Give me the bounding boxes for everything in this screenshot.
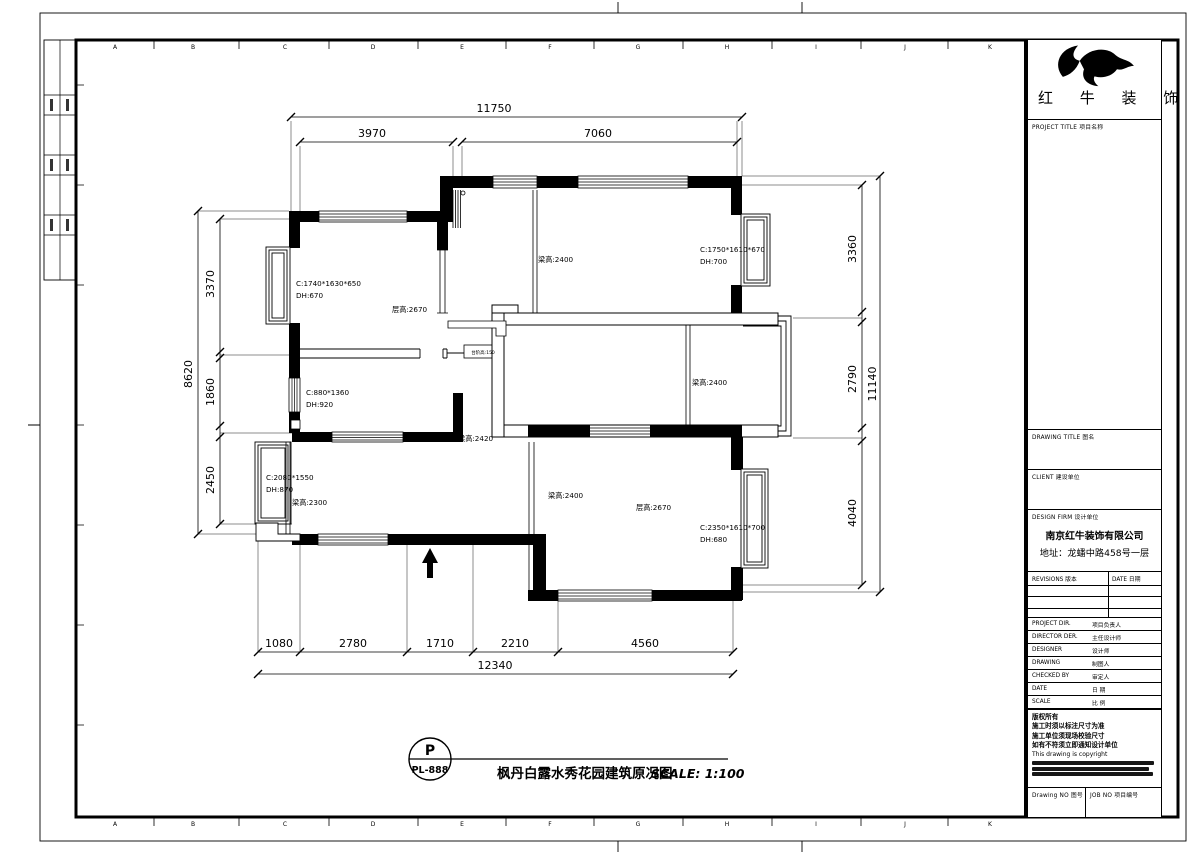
firm-address: 地址：龙蟠中路458号一层 [1028, 545, 1161, 559]
grid-letter-bottom: F [548, 821, 552, 828]
dimension-value: 4040 [846, 499, 859, 527]
plan-label: DH:670 [296, 291, 324, 300]
drawing-no-label: Drawing NO 图号 [1028, 788, 1085, 799]
personnel-role-en: DATE [1028, 686, 1092, 692]
notes-section: 版权所有施工时须以标注尺寸为准施工单位须现场校验尺寸如有不符须立即通知设计单位 … [1028, 709, 1161, 788]
personnel-role-en: CHECKED BY [1028, 673, 1092, 679]
firm-name: 南京红牛装饰有限公司 [1028, 528, 1161, 542]
stamp-letter: P [425, 743, 435, 759]
grid-letter-bottom: C [283, 821, 287, 828]
dimension-value: 3970 [358, 127, 386, 140]
client-section: CLIENT 建设单位 [1028, 470, 1161, 510]
dimension-value: 1080 [265, 637, 293, 650]
personnel-row: CHECKED BY审定人 [1028, 670, 1161, 683]
dimension-value: 2210 [501, 637, 529, 650]
personnel-role-cn: 审定人 [1092, 672, 1109, 681]
grid-letter-top: F [548, 44, 552, 51]
dimension-value: 2780 [339, 637, 367, 650]
plan-label: C:880*1360 [306, 388, 349, 397]
note-line: 如有不符须立即通知设计单位 [1032, 741, 1158, 750]
dimension-value: 3370 [204, 270, 217, 298]
note-line: 施工单位须现场校验尺寸 [1032, 732, 1158, 741]
brand-name: 红 牛 装 饰 [1028, 87, 1161, 108]
plan-label: DH:870 [266, 485, 294, 494]
drawing-title: 枫丹白露水秀花园建筑原况图 [497, 765, 673, 782]
strip-marks [50, 99, 69, 231]
grid-letter-top: B [191, 44, 195, 51]
grid-letter-top: A [113, 44, 118, 51]
grid-letter-bottom: D [371, 821, 376, 828]
dimension-value: 7060 [584, 127, 612, 140]
grid-letter-bottom: G [636, 821, 641, 828]
drawing-no-cell: Drawing NO 图号 [1028, 788, 1086, 817]
dimension-value: 1710 [426, 637, 454, 650]
drawing-number-section: Drawing NO 图号 JOB NO 项目编号 [1028, 788, 1161, 817]
job-no-cell: JOB NO 项目编号 [1086, 788, 1161, 817]
project-title-section: PROJECT TITLE 项目名称 [1028, 120, 1161, 430]
project-title-label: PROJECT TITLE 项目名称 [1028, 120, 1161, 131]
job-no-label: JOB NO 项目编号 [1086, 788, 1161, 799]
plan-label: DH:680 [700, 535, 728, 544]
plan-label: C:2350*1610*700 [700, 523, 765, 532]
grid-letter-bottom: J [903, 821, 906, 828]
grid-letter-top: D [371, 44, 376, 51]
dimension-value: 3360 [846, 235, 859, 263]
dimension-value: 11750 [477, 102, 512, 115]
notes-smudged-line [1032, 772, 1153, 776]
drawing-title-section: DRAWING TITLE 图名 [1028, 430, 1161, 470]
plan-annotations: C:1740*1630*650DH:670层高:2670梁高:2400C:175… [266, 245, 765, 544]
grid-letter-top: C [283, 44, 287, 51]
dimension-value: 11140 [866, 367, 879, 402]
notes-smudged-line [1032, 761, 1154, 765]
personnel-role-cn: 制图人 [1092, 659, 1109, 668]
title-stamp: P PL-888 枫丹白露水秀花园建筑原况图 SCALE: 1:100 [409, 738, 745, 782]
design-firm-label: DESIGN FIRM 设计单位 [1028, 510, 1161, 521]
title-block: 红 牛 装 饰 PROJECT TITLE 项目名称 DRAWING TITLE… [1024, 40, 1162, 817]
dimension-value: 2450 [204, 466, 217, 494]
plan-label: 台阶高:150 [471, 349, 495, 356]
revisions-label: REVISIONS 版本 [1032, 574, 1077, 583]
plan-label: 梁高:2400 [538, 255, 574, 264]
personnel-role-cn: 日 期 [1092, 685, 1105, 694]
personnel-role-cn: 主任设计师 [1092, 633, 1121, 642]
plan-label: 梁高:2400 [548, 491, 584, 500]
plan-label: 层高:2670 [392, 305, 428, 314]
plan-label: 梁高:2300 [292, 498, 328, 507]
personnel-rows: PROJECT DIR.项目负责人DIRECTOR DER.主任设计师DESIG… [1028, 618, 1161, 709]
redbull-logo-icon [1049, 43, 1141, 87]
drawing-sheet: AABBCCDDEEFFGGHHIIJJKK [0, 0, 1200, 856]
client-label: CLIENT 建设单位 [1028, 470, 1161, 481]
grid-letter-bottom: E [460, 821, 464, 828]
personnel-role-en: PROJECT DIR. [1028, 621, 1092, 627]
notes-smudged-line [1032, 767, 1149, 771]
design-firm-section: DESIGN FIRM 设计单位 南京红牛装饰有限公司 地址：龙蟠中路458号一… [1028, 510, 1161, 572]
personnel-role-cn: 比 例 [1092, 698, 1105, 707]
drawing-title-label: DRAWING TITLE 图名 [1028, 430, 1161, 441]
personnel-row: DATE日 期 [1028, 683, 1161, 696]
personnel-row: PROJECT DIR.项目负责人 [1028, 618, 1161, 631]
dimension-value: 2790 [846, 365, 859, 393]
personnel-role-en: DRAWING [1028, 660, 1092, 666]
logo-section: 红 牛 装 饰 [1028, 40, 1161, 120]
notes-chinese: 版权所有施工时须以标注尺寸为准施工单位须现场校验尺寸如有不符须立即通知设计单位 [1032, 713, 1158, 751]
personnel-role-en: DIRECTOR DER. [1028, 634, 1092, 640]
personnel-role-en: SCALE [1028, 699, 1092, 705]
grid-letter-bottom: B [191, 821, 195, 828]
stamp-number: PL-888 [412, 765, 449, 776]
plan-label: 层高:2670 [636, 503, 672, 512]
dimension-value: 8620 [182, 360, 195, 388]
personnel-role-en: DESIGNER [1028, 647, 1092, 653]
revisions-header: REVISIONS 版本 DATE 日期 [1028, 572, 1161, 586]
floor-plan-canvas: AABBCCDDEEFFGGHHIIJJKK [0, 0, 1200, 856]
personnel-role-cn: 设计师 [1092, 646, 1109, 655]
grid-letter-top: H [725, 44, 730, 51]
personnel-role-cn: 项目负责人 [1092, 620, 1121, 629]
grid-letter-top: E [460, 44, 464, 51]
plan-label: C:2080*1550 [266, 473, 314, 482]
plan-label: 梁高:2400 [692, 378, 728, 387]
notes-english: This drawing is copyright [1032, 751, 1158, 760]
plan-label: 梁高:2420 [458, 434, 494, 443]
revisions-section: REVISIONS 版本 DATE 日期 [1028, 572, 1161, 618]
grid-letter-top: K [988, 44, 993, 51]
personnel-row: DESIGNER设计师 [1028, 644, 1161, 657]
entrance-arrow-icon [422, 548, 438, 578]
note-line: 施工时须以标注尺寸为准 [1032, 722, 1158, 731]
revision-row [1028, 586, 1161, 597]
drawing-scale: SCALE: 1:100 [651, 766, 745, 781]
plan-label: DH:920 [306, 400, 334, 409]
dimension-value: 12340 [478, 659, 513, 672]
grid-letter-top: I [815, 44, 817, 51]
plan-label: C:1750*1610*670 [700, 245, 765, 254]
dimension-value: 4560 [631, 637, 659, 650]
grid-letter-top: J [903, 44, 906, 51]
plan-label: DH:700 [700, 257, 728, 266]
note-line: 版权所有 [1032, 713, 1158, 722]
grid-letter-bottom: A [113, 821, 118, 828]
personnel-row: DIRECTOR DER.主任设计师 [1028, 631, 1161, 644]
grid-letter-bottom: H [725, 821, 730, 828]
grid-letter-top: G [636, 44, 641, 51]
personnel-row: DRAWING制图人 [1028, 657, 1161, 670]
binding-strip [44, 40, 76, 280]
balcony-bay-window [743, 316, 791, 436]
revision-row [1028, 597, 1161, 608]
grid-letter-bottom: K [988, 821, 993, 828]
plan-label: C:1740*1630*650 [296, 279, 361, 288]
grid-letter-bottom: I [815, 821, 817, 828]
revisions-date-label: DATE 日期 [1112, 574, 1141, 583]
personnel-row: SCALE比 例 [1028, 696, 1161, 709]
dimension-value: 1860 [204, 378, 217, 406]
